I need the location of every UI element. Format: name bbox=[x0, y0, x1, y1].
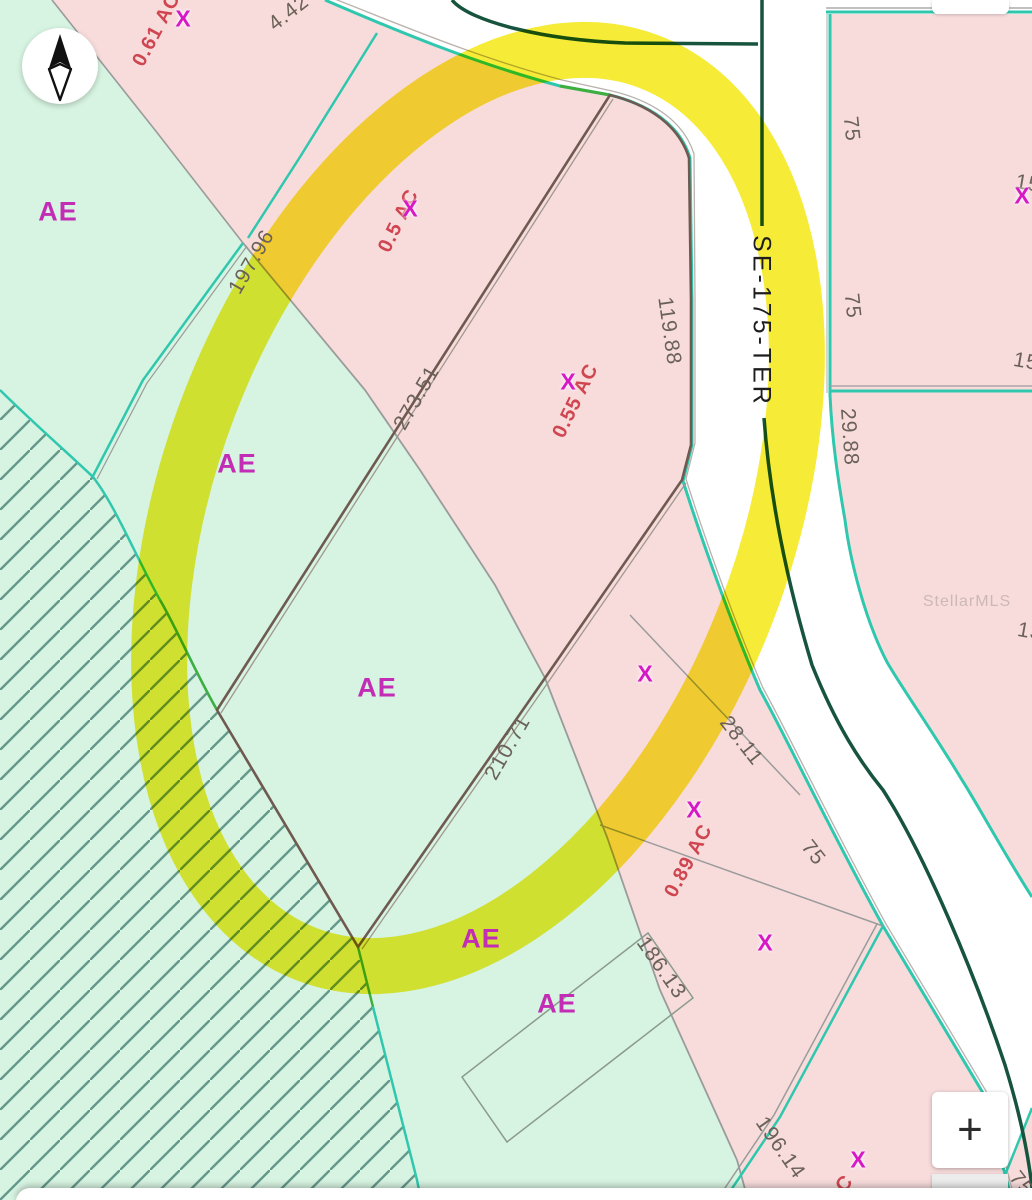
flood-zone-label: AE bbox=[217, 449, 257, 480]
dimension-label: 15 bbox=[1011, 348, 1032, 376]
watermark: StellarMLS bbox=[923, 593, 1011, 611]
north-arrow-icon bbox=[22, 28, 98, 104]
flood-zone-label: AE bbox=[461, 924, 501, 955]
partial-top-button[interactable] bbox=[932, 0, 1009, 14]
flood-zone-label: AE bbox=[38, 197, 78, 228]
flood-zone-label: AE bbox=[357, 673, 397, 704]
compass-button[interactable] bbox=[22, 28, 98, 104]
x-marker: X bbox=[402, 196, 417, 223]
bottom-sheet-handle[interactable] bbox=[16, 1188, 1032, 1200]
x-marker: X bbox=[757, 930, 772, 957]
zoom-in-button[interactable]: + bbox=[932, 1092, 1008, 1168]
x-marker: X bbox=[637, 661, 652, 688]
dimension-label: 75 bbox=[838, 115, 865, 143]
x-marker: X bbox=[560, 369, 575, 396]
x-marker: X bbox=[1014, 183, 1029, 210]
x-marker: X bbox=[686, 797, 701, 824]
dimension-label: 75 bbox=[839, 292, 866, 320]
flood-zone-label: AE bbox=[537, 989, 577, 1020]
parcel-map-screen[interactable]: 4.42 0.61 AC X 197.96 0.5 AC X 273.51 0.… bbox=[0, 0, 1032, 1200]
parcel-map-canvas[interactable] bbox=[0, 0, 1032, 1200]
plus-icon: + bbox=[957, 1108, 983, 1152]
dimension-label: 29.88 bbox=[835, 407, 863, 466]
street-label: SE-175-TER bbox=[747, 235, 776, 407]
x-marker: X bbox=[850, 1147, 865, 1174]
x-marker: X bbox=[175, 6, 190, 33]
dimension-label: 13 bbox=[1015, 618, 1032, 646]
